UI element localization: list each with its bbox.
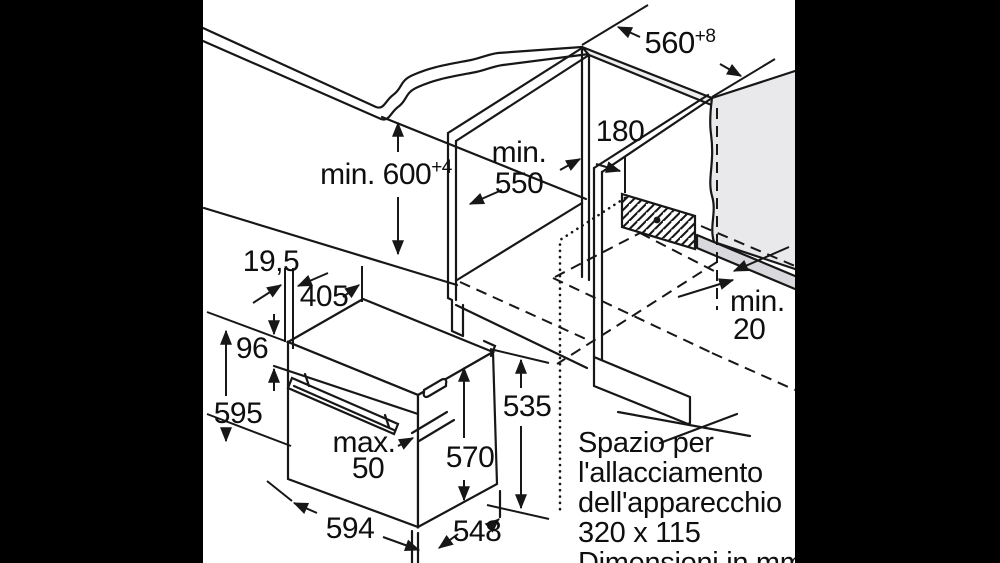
label-width: 594 — [326, 512, 375, 545]
label-rear-height: 535 — [503, 390, 552, 423]
label-total-height: 595 — [214, 397, 263, 430]
label-niche-depth-2: 550 — [495, 167, 544, 200]
installation-diagram-page: 560+8 min. 600+4 min. 550 180 min. 20 19… — [0, 0, 1000, 563]
letterbox-left — [0, 0, 203, 563]
label-depth: 548 — [453, 515, 502, 548]
note-line-3: dell'apparecchio — [578, 487, 782, 519]
note-line-4: 320 x 115 — [578, 517, 701, 549]
side-panel-surface — [710, 71, 795, 269]
label-front-height: 570 — [446, 441, 495, 474]
label-side-offset: 180 — [596, 115, 645, 148]
label-rear-gap-2: 20 — [733, 313, 765, 346]
oven-installation-diagram: 560+8 min. 600+4 min. 550 180 min. 20 19… — [0, 0, 1000, 563]
label-front-trim: 19,5 — [243, 245, 299, 278]
connection-point-dot — [654, 217, 661, 224]
label-top-depth: 405 — [300, 280, 349, 313]
label-control-panel: 96 — [236, 332, 268, 365]
letterbox-right — [795, 0, 1000, 563]
note-line-2: l'allacciamento — [578, 457, 763, 489]
note-line-1: Spazio per — [578, 427, 714, 459]
note-units: Dimensioni in mm — [578, 547, 804, 563]
label-door-protrusion-2: 50 — [352, 452, 384, 485]
label-niche-depth-1: min. — [492, 136, 547, 169]
